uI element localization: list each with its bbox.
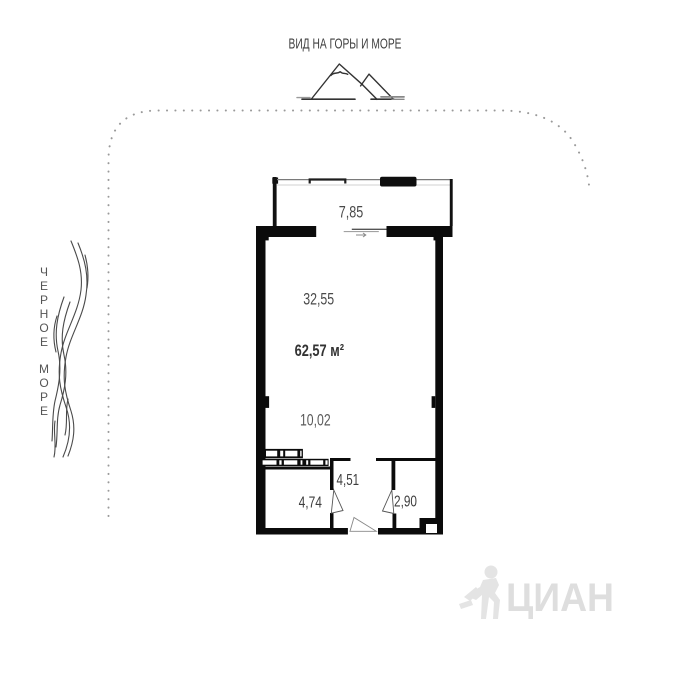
svg-text:Ч: Ч	[40, 265, 48, 279]
svg-text:Е: Е	[40, 335, 48, 349]
svg-text:Р: Р	[40, 390, 48, 404]
svg-text:Е: Е	[40, 279, 48, 293]
svg-text:7,85: 7,85	[339, 204, 364, 222]
svg-text:М: М	[39, 362, 49, 376]
svg-text:Е: Е	[40, 404, 48, 418]
svg-text:ВИД НА ГОРЫ И МОРЕ: ВИД НА ГОРЫ И МОРЕ	[289, 37, 402, 53]
svg-text:4,74: 4,74	[299, 495, 323, 512]
svg-text:10,02: 10,02	[300, 411, 331, 429]
svg-text:О: О	[39, 376, 48, 390]
svg-text:62,57 м²: 62,57 м²	[295, 342, 345, 360]
svg-text:ЦИАН: ЦИАН	[506, 576, 614, 620]
svg-text:32,55: 32,55	[303, 290, 334, 308]
svg-text:Р: Р	[40, 293, 48, 307]
svg-text:2,90: 2,90	[394, 493, 417, 510]
svg-text:4,51: 4,51	[337, 472, 360, 489]
svg-text:О: О	[39, 321, 48, 335]
svg-text:Н: Н	[40, 307, 49, 321]
